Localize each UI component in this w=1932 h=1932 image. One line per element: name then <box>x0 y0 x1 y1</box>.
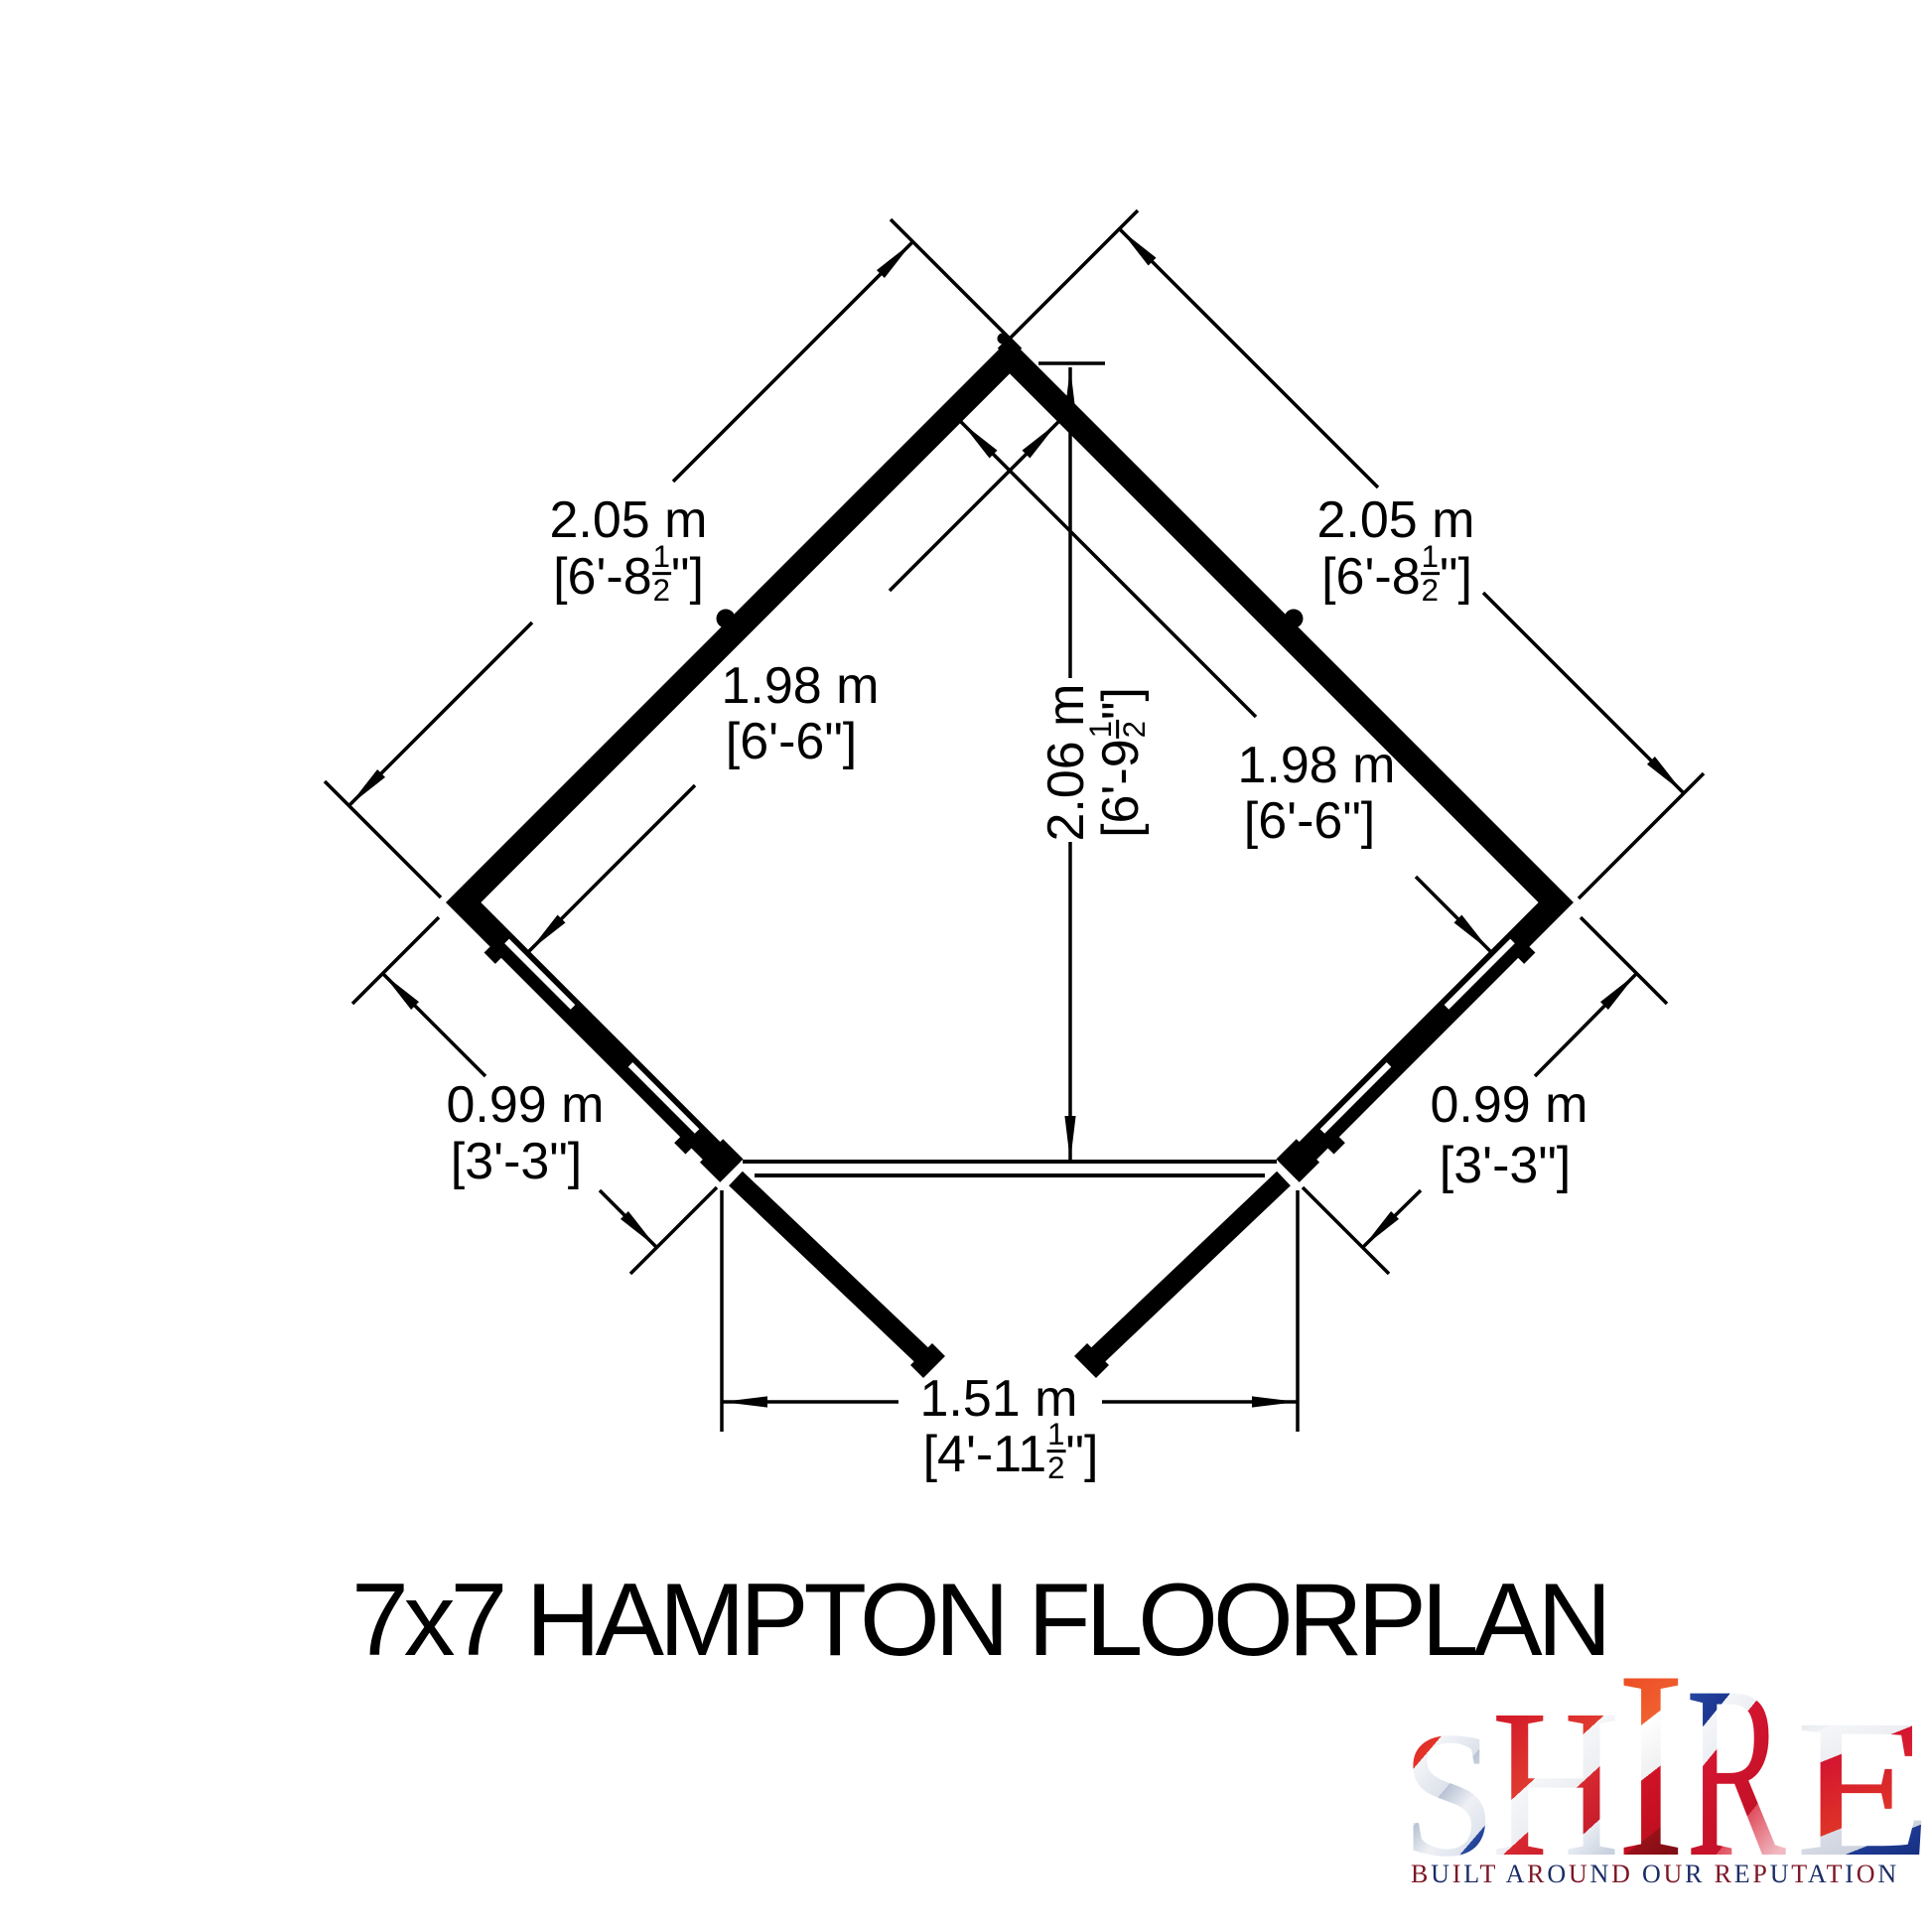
svg-text:BUILT AROUND OUR REPUTATION: BUILT AROUND OUR REPUTATION <box>1411 1860 1899 1888</box>
